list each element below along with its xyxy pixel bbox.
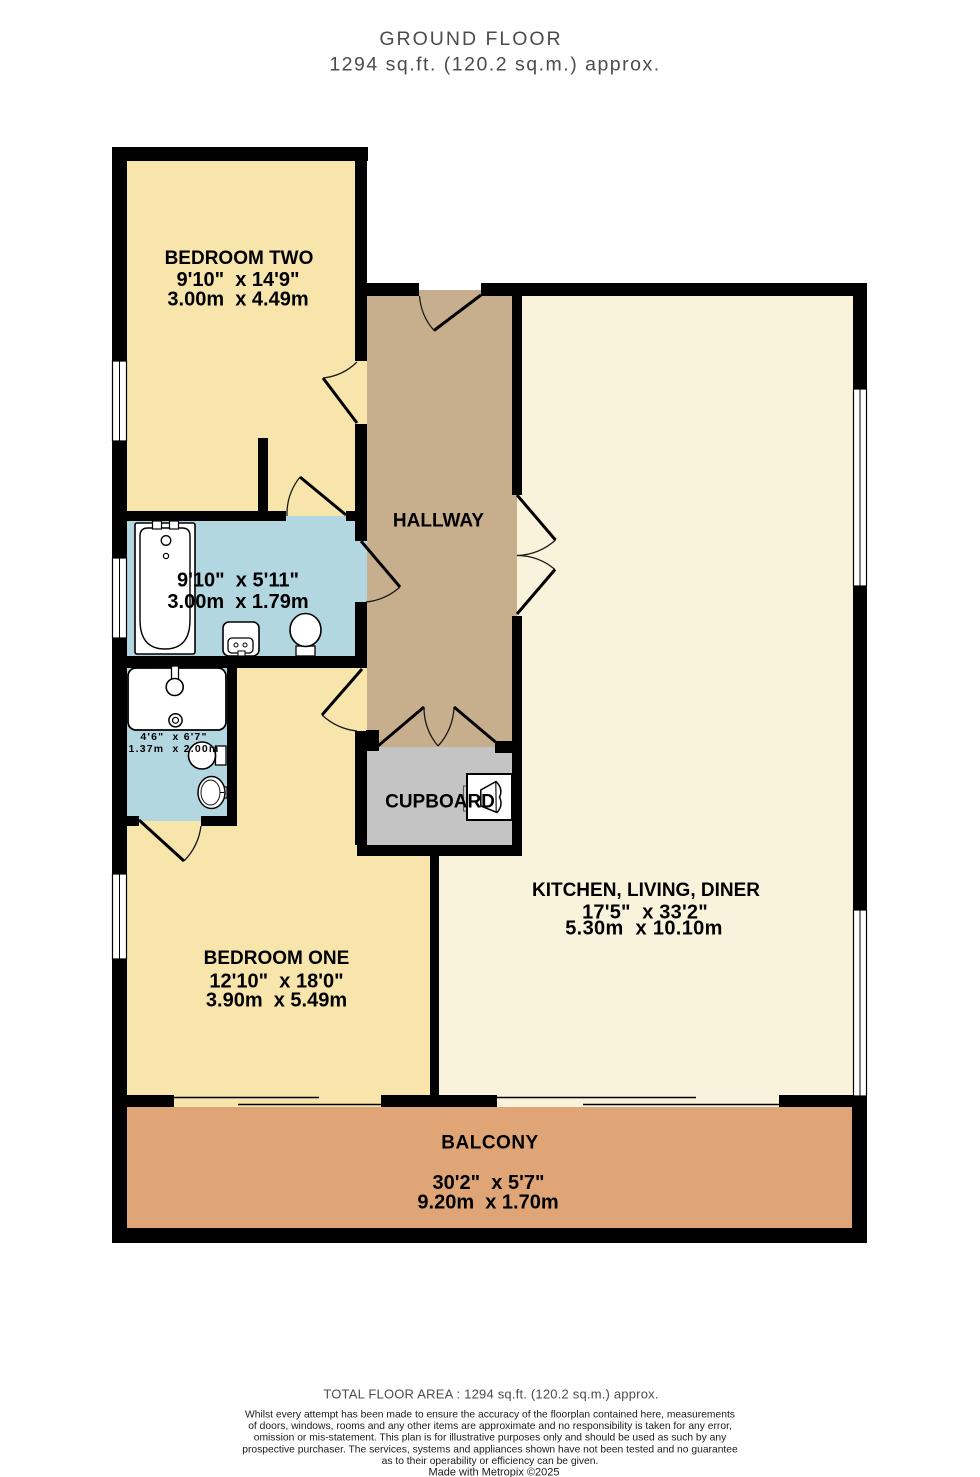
svg-text:5.30m x 10.10m: 5.30m x 10.10m xyxy=(565,917,723,939)
svg-text:9'10" x 5'11": 9'10" x 5'11" xyxy=(177,570,299,592)
svg-text:3.00m x 1.79m: 3.00m x 1.79m xyxy=(167,591,308,613)
svg-text:1.37m x 2.00m: 1.37m x 2.00m xyxy=(129,743,220,755)
svg-text:TOTAL FLOOR AREA : 1294 sq.ft.: TOTAL FLOOR AREA : 1294 sq.ft. (120.2 sq… xyxy=(323,1387,658,1402)
svg-text:BALCONY: BALCONY xyxy=(441,1133,538,1154)
svg-text:9.20m x 1.70m: 9.20m x 1.70m xyxy=(417,1192,558,1214)
svg-text:KITCHEN, LIVING, DINER: KITCHEN, LIVING, DINER xyxy=(532,880,760,901)
svg-text:CUPBOARD: CUPBOARD xyxy=(385,792,495,813)
svg-text:4'6" x 6'7": 4'6" x 6'7" xyxy=(140,731,207,743)
svg-text:1294 sq.ft. (120.2 sq.m.) appr: 1294 sq.ft. (120.2 sq.m.) approx. xyxy=(329,54,660,76)
svg-text:omission or mis-statement. Thi: omission or mis-statement. This plan is … xyxy=(254,1433,727,1444)
svg-text:BEDROOM ONE: BEDROOM ONE xyxy=(204,948,350,969)
svg-text:prospective purchaser. The ser: prospective purchaser. The services, sys… xyxy=(242,1444,738,1455)
svg-text:Made with Metropix ©2025: Made with Metropix ©2025 xyxy=(428,1467,559,1477)
svg-text:Whilst every attempt has been: Whilst every attempt has been made to en… xyxy=(245,1409,735,1420)
svg-text:as to their operability or eff: as to their operability or efficiency ca… xyxy=(382,1456,599,1467)
svg-text:3.00m x 4.49m: 3.00m x 4.49m xyxy=(167,288,308,310)
svg-text:GROUND FLOOR: GROUND FLOOR xyxy=(379,28,562,50)
svg-text:HALLWAY: HALLWAY xyxy=(393,510,484,531)
svg-text:BEDROOM TWO: BEDROOM TWO xyxy=(165,248,314,269)
svg-text:3.90m x 5.49m: 3.90m x 5.49m xyxy=(206,990,347,1012)
svg-text:of doors, windows, rooms and a: of doors, windows, rooms and any other i… xyxy=(248,1421,732,1432)
